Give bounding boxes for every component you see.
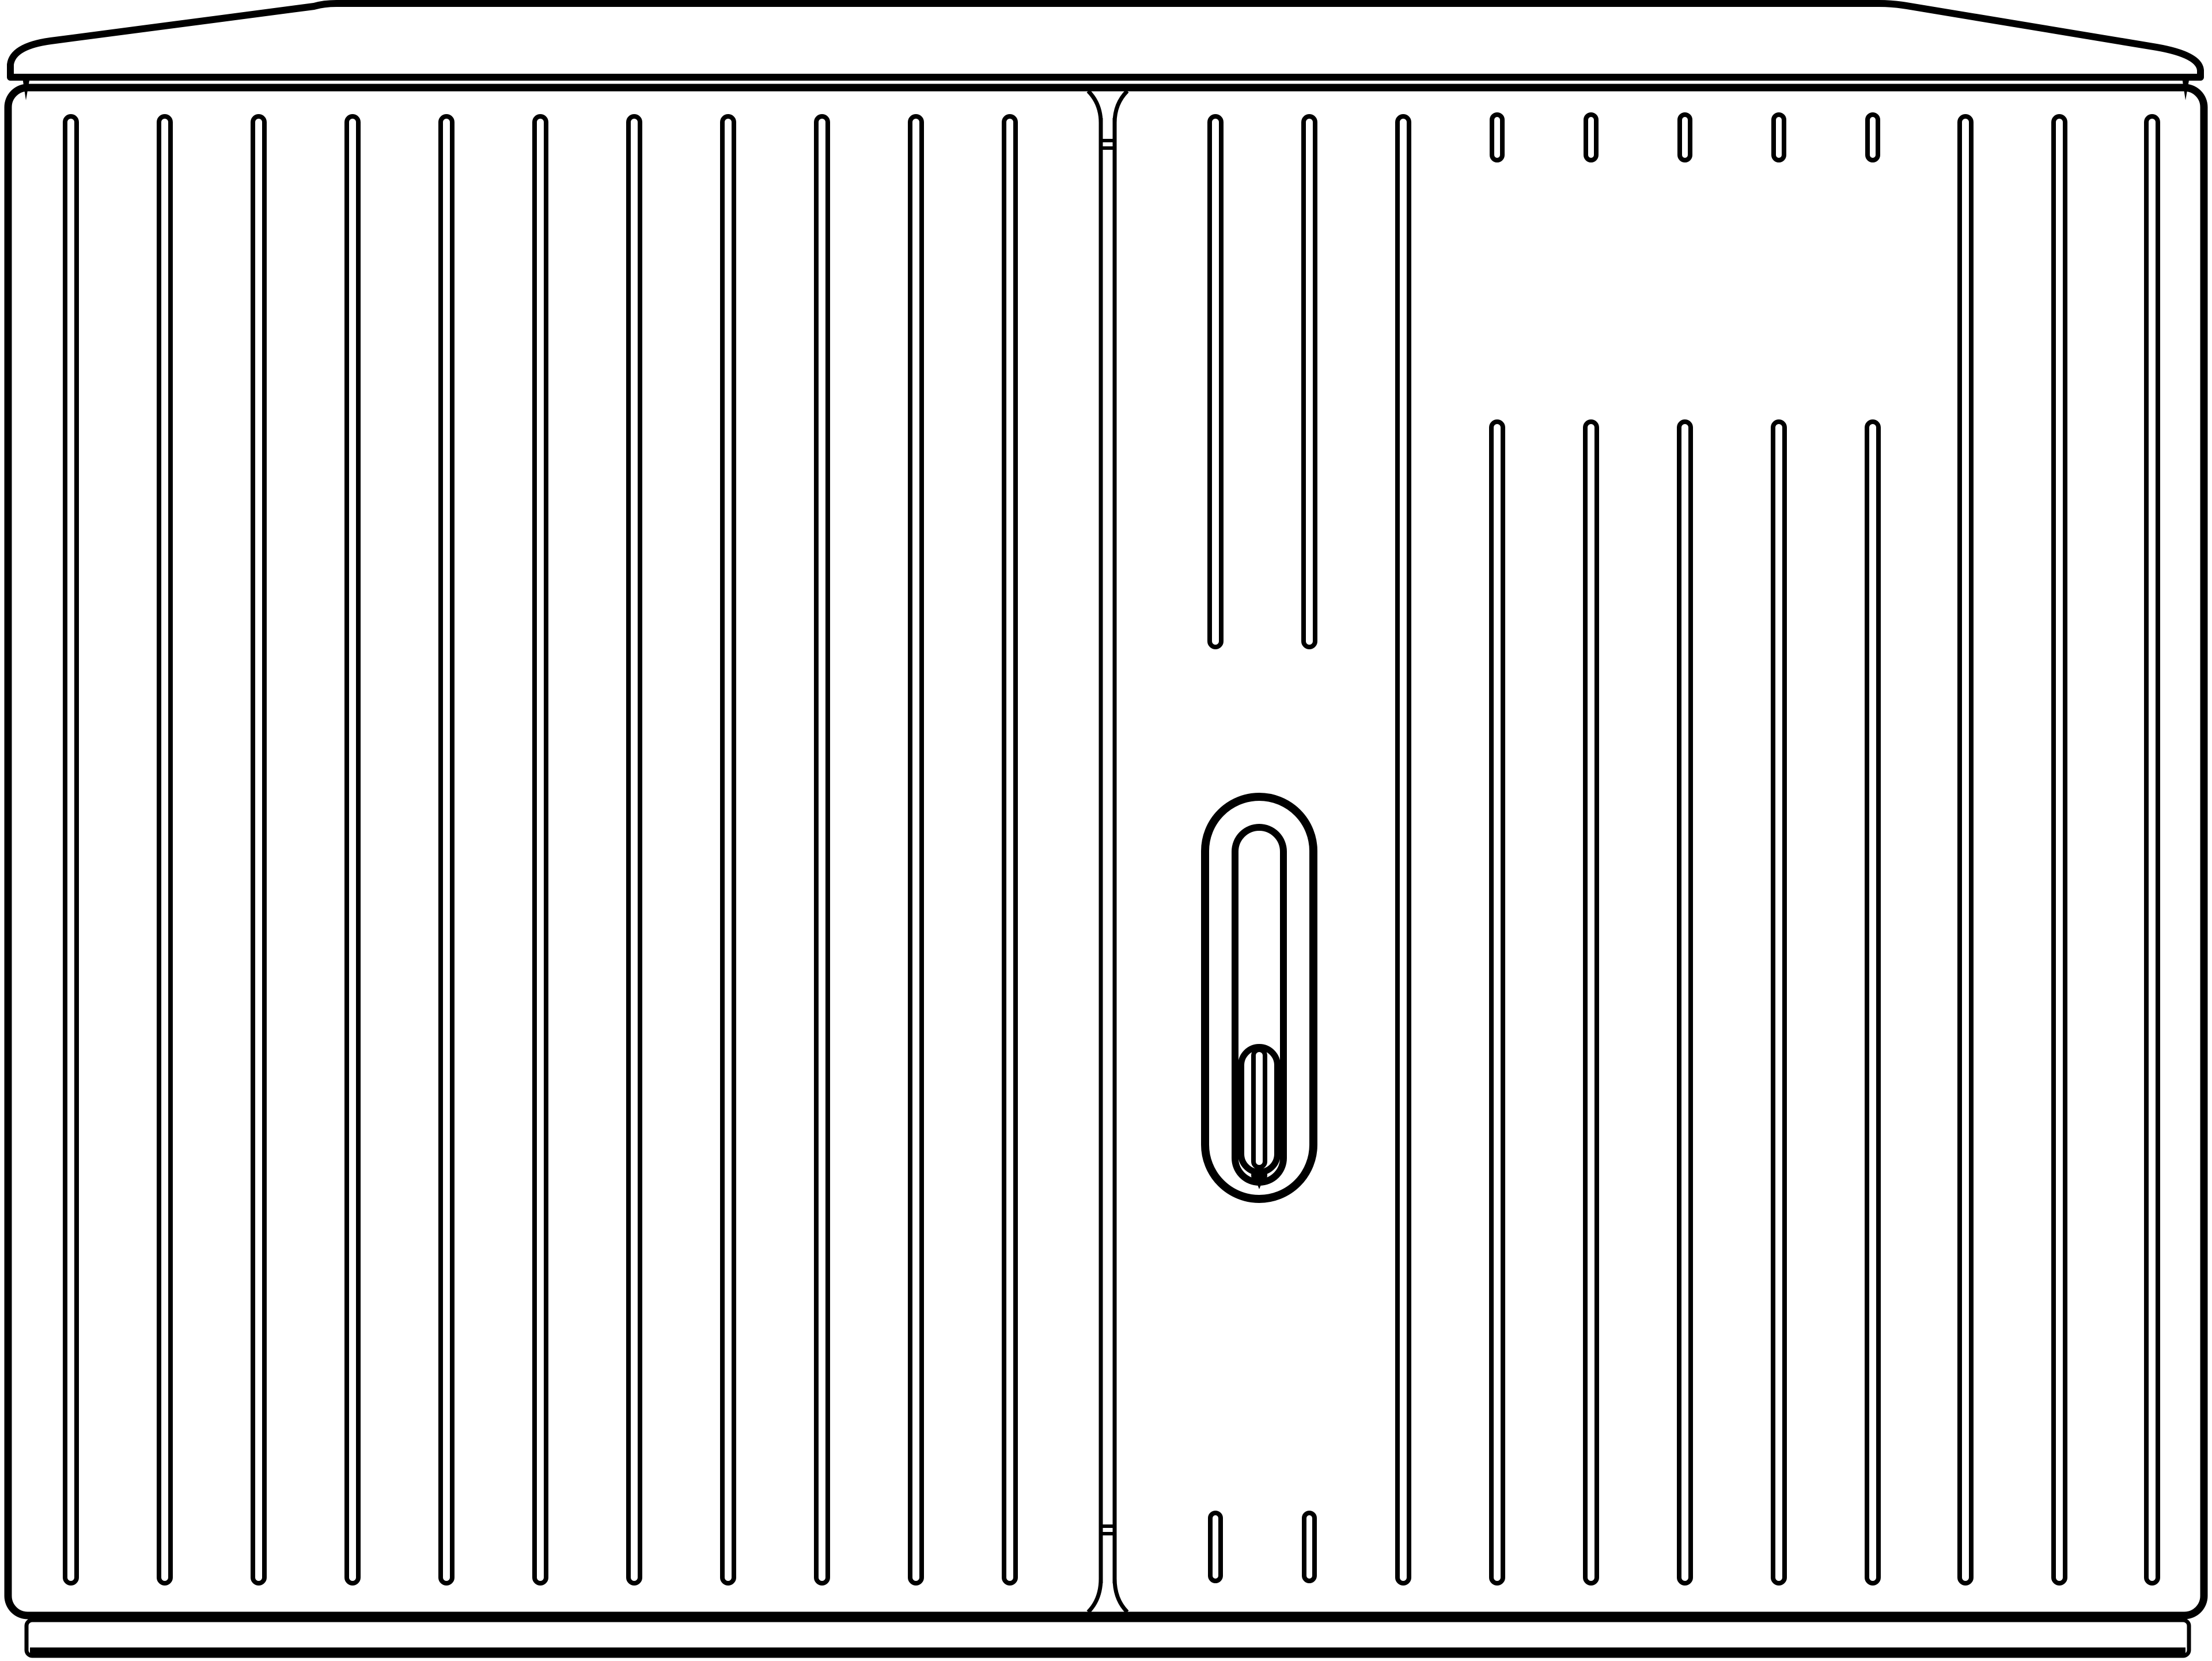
left-door-rib [910, 116, 922, 1583]
keyhole-slot [1253, 1050, 1265, 1167]
vent-slot [1774, 115, 1784, 160]
right-door-rib [1960, 116, 1971, 1583]
handle-strip-rib [1304, 116, 1315, 647]
vent-slot [1492, 115, 1502, 160]
cabinet-lid [10, 3, 2200, 77]
vent-rib [1585, 422, 1597, 1583]
handle-strip-rib [1210, 116, 1221, 647]
left-door-rib [535, 116, 546, 1583]
bottom-vent-slot [1210, 1513, 1221, 1581]
left-door-rib [253, 116, 264, 1583]
right-door-rib [2146, 116, 2158, 1583]
drawing-svg [0, 0, 2212, 1661]
vent-slot [1586, 115, 1596, 160]
left-door-rib [347, 116, 358, 1583]
vent-slot [1680, 115, 1690, 160]
vent-slot [1868, 115, 1878, 160]
right-door-rib [1397, 116, 1409, 1583]
vent-rib [1773, 422, 1785, 1583]
right-door-rib [2054, 116, 2065, 1583]
left-door-rib [816, 116, 828, 1583]
left-door-rib [65, 116, 77, 1583]
bottom-vent-slot [1304, 1513, 1315, 1581]
cabinet-line-drawing [0, 0, 2212, 1661]
left-door-rib [722, 116, 734, 1583]
left-door-rib [628, 116, 640, 1583]
vent-rib [1867, 422, 1878, 1583]
left-door-rib [1004, 116, 1016, 1583]
left-door-rib [159, 116, 171, 1583]
vent-rib [1491, 422, 1503, 1583]
vent-rib [1679, 422, 1691, 1583]
left-door-rib [441, 116, 452, 1583]
